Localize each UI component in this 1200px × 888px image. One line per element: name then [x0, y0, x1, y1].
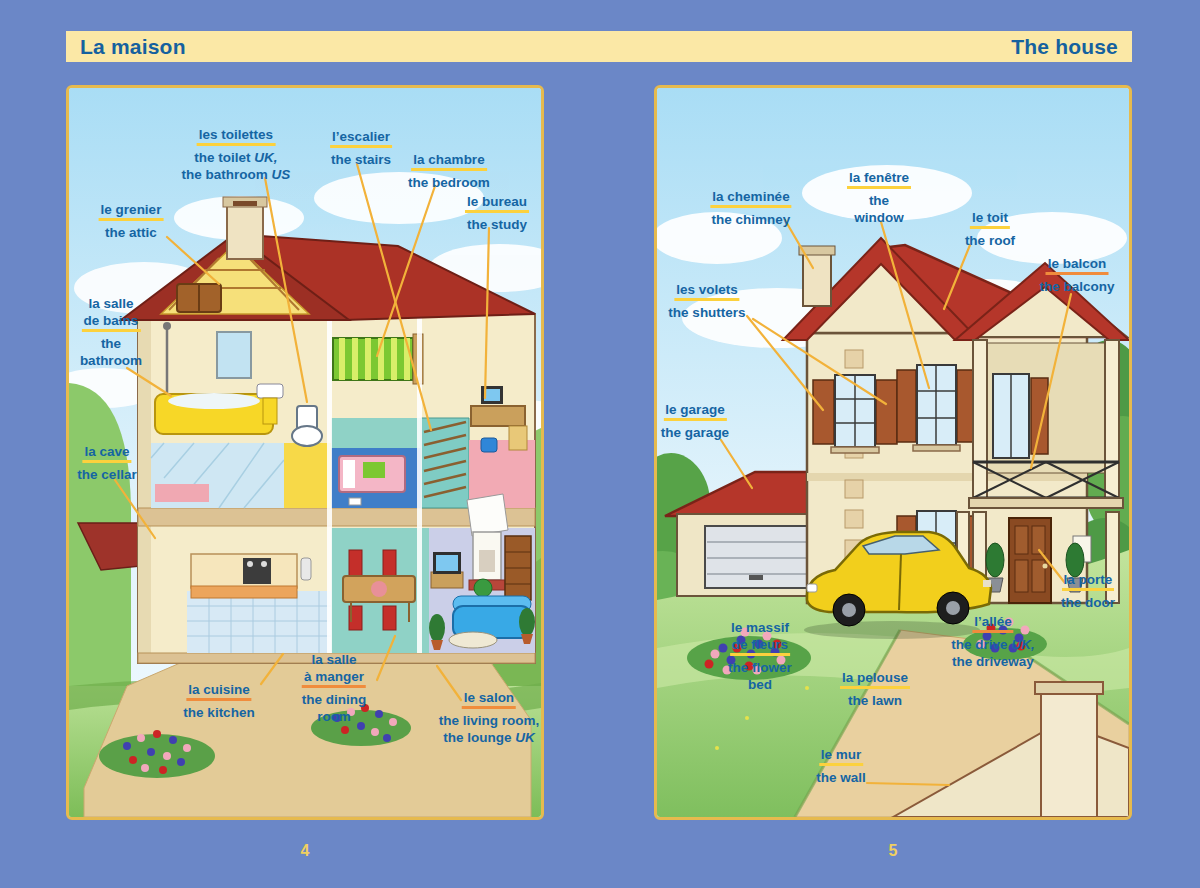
- label-porte: la porte the door: [1061, 571, 1115, 611]
- label-cave: la cave the cellar: [77, 443, 136, 483]
- chimney: [799, 246, 835, 306]
- house-cutaway: [138, 314, 535, 663]
- label-cuisine: la cuisine the kitchen: [183, 681, 254, 721]
- label-fenetre: la fenêtre the window: [847, 169, 911, 226]
- window-upper-left: [813, 375, 897, 453]
- page-number-left: 4: [275, 842, 335, 860]
- stairs: [421, 418, 469, 508]
- label-toit: le toit the roof: [965, 209, 1015, 249]
- kitchen: [187, 554, 331, 653]
- label-escalier: l’escalier the stairs: [330, 128, 392, 168]
- label-mur: le mur the wall: [816, 746, 866, 786]
- label-grenier: le grenier the attic: [99, 201, 164, 241]
- label-pelouse: la pelouse the lawn: [840, 669, 910, 709]
- label-salle-a-manger: la salle à manger the dining room: [302, 651, 367, 725]
- label-bureau: le bureau the study: [465, 193, 529, 233]
- label-salle-de-bains: la salle de bains the bathroom: [80, 295, 142, 369]
- header-band: La maison The house: [66, 31, 1132, 62]
- label-volets: les volets the shutters: [668, 281, 745, 321]
- page-title-english: The house: [1011, 35, 1118, 59]
- label-toilettes: les toilettes the toilet UK, the bathroo…: [182, 126, 291, 183]
- page-number-right: 5: [863, 842, 923, 860]
- label-allee: l’allée the drive UK, the driveway: [951, 613, 1034, 670]
- bedroom: [331, 334, 423, 508]
- label-cheminee: la cheminée the chimney: [710, 188, 791, 228]
- dining-room: [331, 528, 429, 653]
- interior-panel: le grenier the attic les toilettes the t…: [66, 85, 544, 820]
- chimney: [223, 197, 267, 259]
- window-upper-middle: [897, 365, 976, 451]
- label-chambre: la chambre the bedroom: [408, 151, 490, 191]
- label-salon: le salon the living room, the lounge UK: [439, 689, 540, 746]
- label-balcon: le balcon the balcony: [1039, 255, 1114, 295]
- front-door: [1009, 518, 1051, 603]
- label-massif-de-fleurs: le massif de fleurs the flower bed: [728, 619, 792, 693]
- exterior-panel: la cheminée the chimney la fenêtre the w…: [654, 85, 1132, 820]
- label-garage: le garage the garage: [661, 401, 729, 441]
- page-title-french: La maison: [80, 35, 186, 59]
